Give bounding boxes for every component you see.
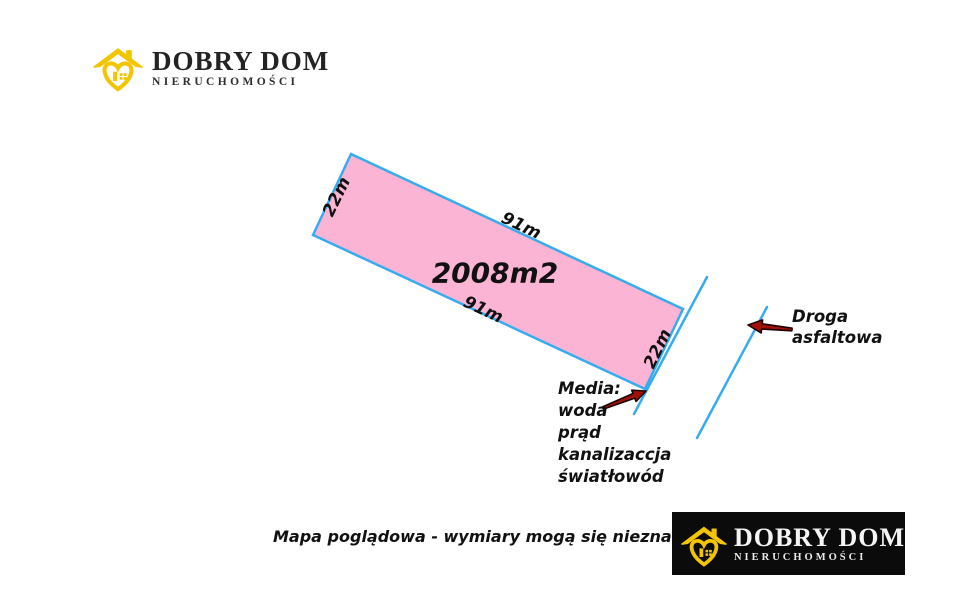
- brand-footer: DOBRY DOM NIERUCHOMOŚCI: [672, 512, 905, 575]
- road-label-line1: Droga: [792, 306, 883, 327]
- plot-map-canvas: DOBRY DOM NIERUCHOMOŚCI 2008m2 91m 91m 2…: [0, 0, 960, 591]
- media-item-fiber: światłowód: [558, 466, 671, 488]
- road-label-line2: asfaltowa: [792, 327, 883, 348]
- media-block: Media: woda prąd kanalizaccja światłowód: [558, 378, 671, 488]
- plot-geometry: [0, 0, 960, 591]
- media-title: Media:: [558, 378, 671, 400]
- house-heart-icon: [680, 522, 728, 568]
- media-item-water: woda: [558, 400, 671, 422]
- road-label: Droga asfaltowa: [792, 306, 883, 348]
- brand-subtitle: NIERUCHOMOŚCI: [734, 552, 905, 563]
- parcel-area-label: 2008m2: [432, 257, 559, 290]
- media-item-sewage: kanalizaccja: [558, 444, 671, 466]
- media-item-power: prąd: [558, 422, 671, 444]
- brand-name: DOBRY DOM: [734, 525, 905, 550]
